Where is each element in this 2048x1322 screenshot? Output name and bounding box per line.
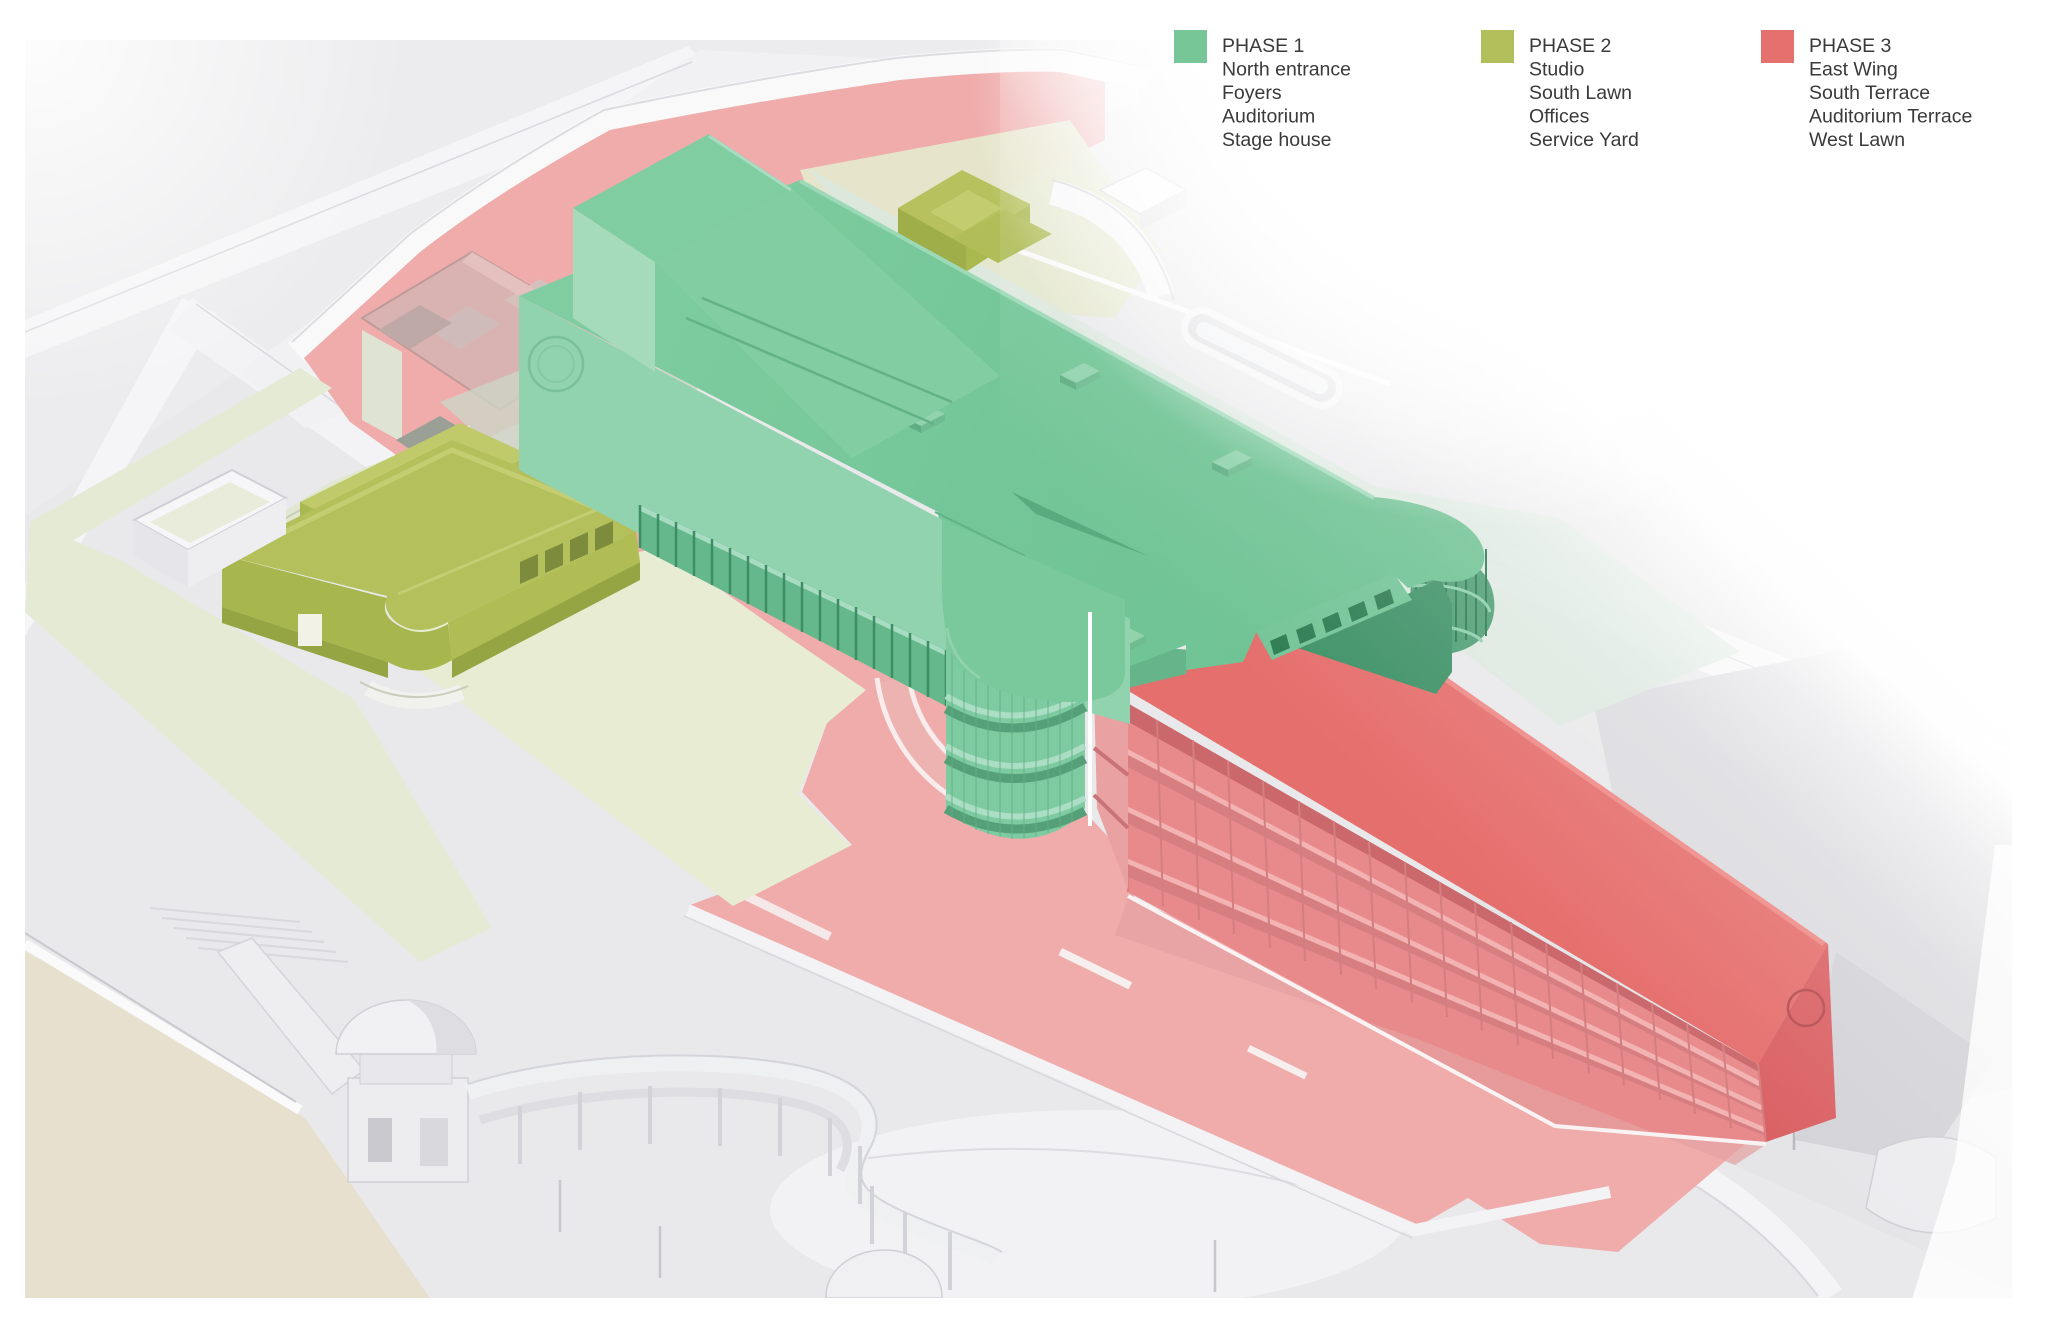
- svg-text:East Wing: East Wing: [1809, 59, 1898, 81]
- svg-text:Stage house: Stage house: [1222, 129, 1332, 151]
- svg-text:North entrance: North entrance: [1222, 59, 1351, 81]
- svg-text:PHASE 2: PHASE 2: [1529, 35, 1611, 57]
- svg-text:South Lawn: South Lawn: [1529, 82, 1632, 104]
- svg-text:PHASE 3: PHASE 3: [1809, 35, 1891, 57]
- svg-text:PHASE 1: PHASE 1: [1222, 35, 1304, 57]
- svg-text:Service Yard: Service Yard: [1529, 129, 1639, 151]
- svg-text:South Terrace: South Terrace: [1809, 82, 1930, 104]
- svg-text:Studio: Studio: [1529, 59, 1584, 81]
- svg-text:Auditorium Terrace: Auditorium Terrace: [1809, 106, 1972, 128]
- svg-text:Auditorium: Auditorium: [1222, 106, 1315, 128]
- svg-text:Offices: Offices: [1529, 106, 1590, 128]
- svg-text:West Lawn: West Lawn: [1809, 129, 1905, 151]
- svg-text:Foyers: Foyers: [1222, 82, 1282, 104]
